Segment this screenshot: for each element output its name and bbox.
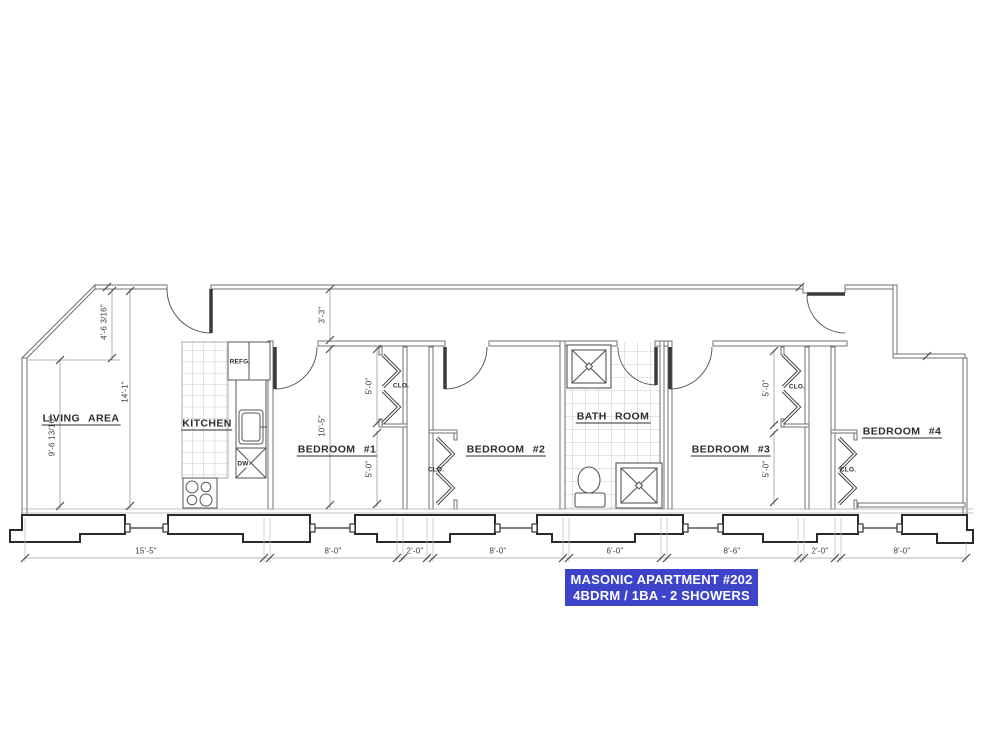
bedroom1-door-arc (275, 347, 317, 389)
kitchen-tile-floor (182, 342, 228, 478)
dim-hallway-width: 3'-3" (318, 307, 327, 324)
closet-label-4: CLO. (840, 467, 856, 474)
dim-bottom-0: 15'-5" (135, 547, 157, 556)
room-label-kitchen: KITCHEN (181, 418, 232, 431)
entry-door-arc (167, 289, 211, 333)
dim-bottom-1: 8'-0" (325, 547, 342, 556)
dim-bottom-4: 6'-0" (607, 547, 624, 556)
banner-title: MASONIC APARTMENT #202 (570, 572, 752, 588)
dim-closet-1-bottom: 5'-0" (365, 461, 374, 478)
door-leaves (211, 289, 845, 389)
bedroom2-door-arc (445, 347, 487, 389)
dim-living-width: 9'-6 13/16" (48, 416, 57, 456)
walls (22, 285, 967, 515)
fixture-label-dishwasher: DW (236, 461, 249, 468)
dim-closet-2-top: 5'-0" (762, 380, 771, 397)
floorplan-page: LIVING AREA KITCHEN BEDROOM #1 BEDROOM #… (0, 0, 1000, 742)
dim-bottom-6: 2'-0" (812, 547, 829, 556)
dim-living-depth: 14'-1" (121, 381, 130, 403)
bedroom3-door-arc (670, 347, 712, 389)
dim-bottom-3: 8'-0" (490, 547, 507, 556)
closet-label-2: CLO. (428, 467, 444, 474)
floorplan-linework (0, 0, 1000, 742)
room-label-bath-room: BATH ROOM (576, 411, 651, 424)
banner: MASONIC APARTMENT #202 4BDRM / 1BA - 2 S… (565, 569, 758, 606)
dim-bottom-7: 8'-0" (894, 547, 911, 556)
dim-bedroom1-depth: 10'-5" (318, 415, 327, 437)
room-label-bedroom-3: BEDROOM #3 (691, 444, 771, 457)
bottom-exterior-wall (10, 509, 973, 543)
room-label-bedroom-4: BEDROOM #4 (862, 426, 942, 439)
dim-closet-2-bottom: 5'-0" (762, 461, 771, 478)
fixture-label-refrigerator: REFG. (230, 359, 251, 366)
dim-diagonal-wall: 4'-6 3/16" (100, 304, 109, 340)
dim-closet-1-top: 5'-0" (365, 378, 374, 395)
banner-subtitle: 4BDRM / 1BA - 2 SHOWERS (573, 588, 750, 604)
closet-label-3: CLO. (789, 384, 805, 391)
room-label-bedroom-2: BEDROOM #2 (466, 444, 546, 457)
bedroom4-door-arc (807, 295, 845, 333)
dim-bottom-2: 2'-0" (407, 547, 424, 556)
dim-bottom-5: 8'-6" (724, 547, 741, 556)
closet-label-1: CLO. (393, 383, 409, 390)
room-label-bedroom-1: BEDROOM #1 (297, 444, 377, 457)
shower-2 (616, 463, 662, 508)
shower-1 (567, 345, 611, 388)
